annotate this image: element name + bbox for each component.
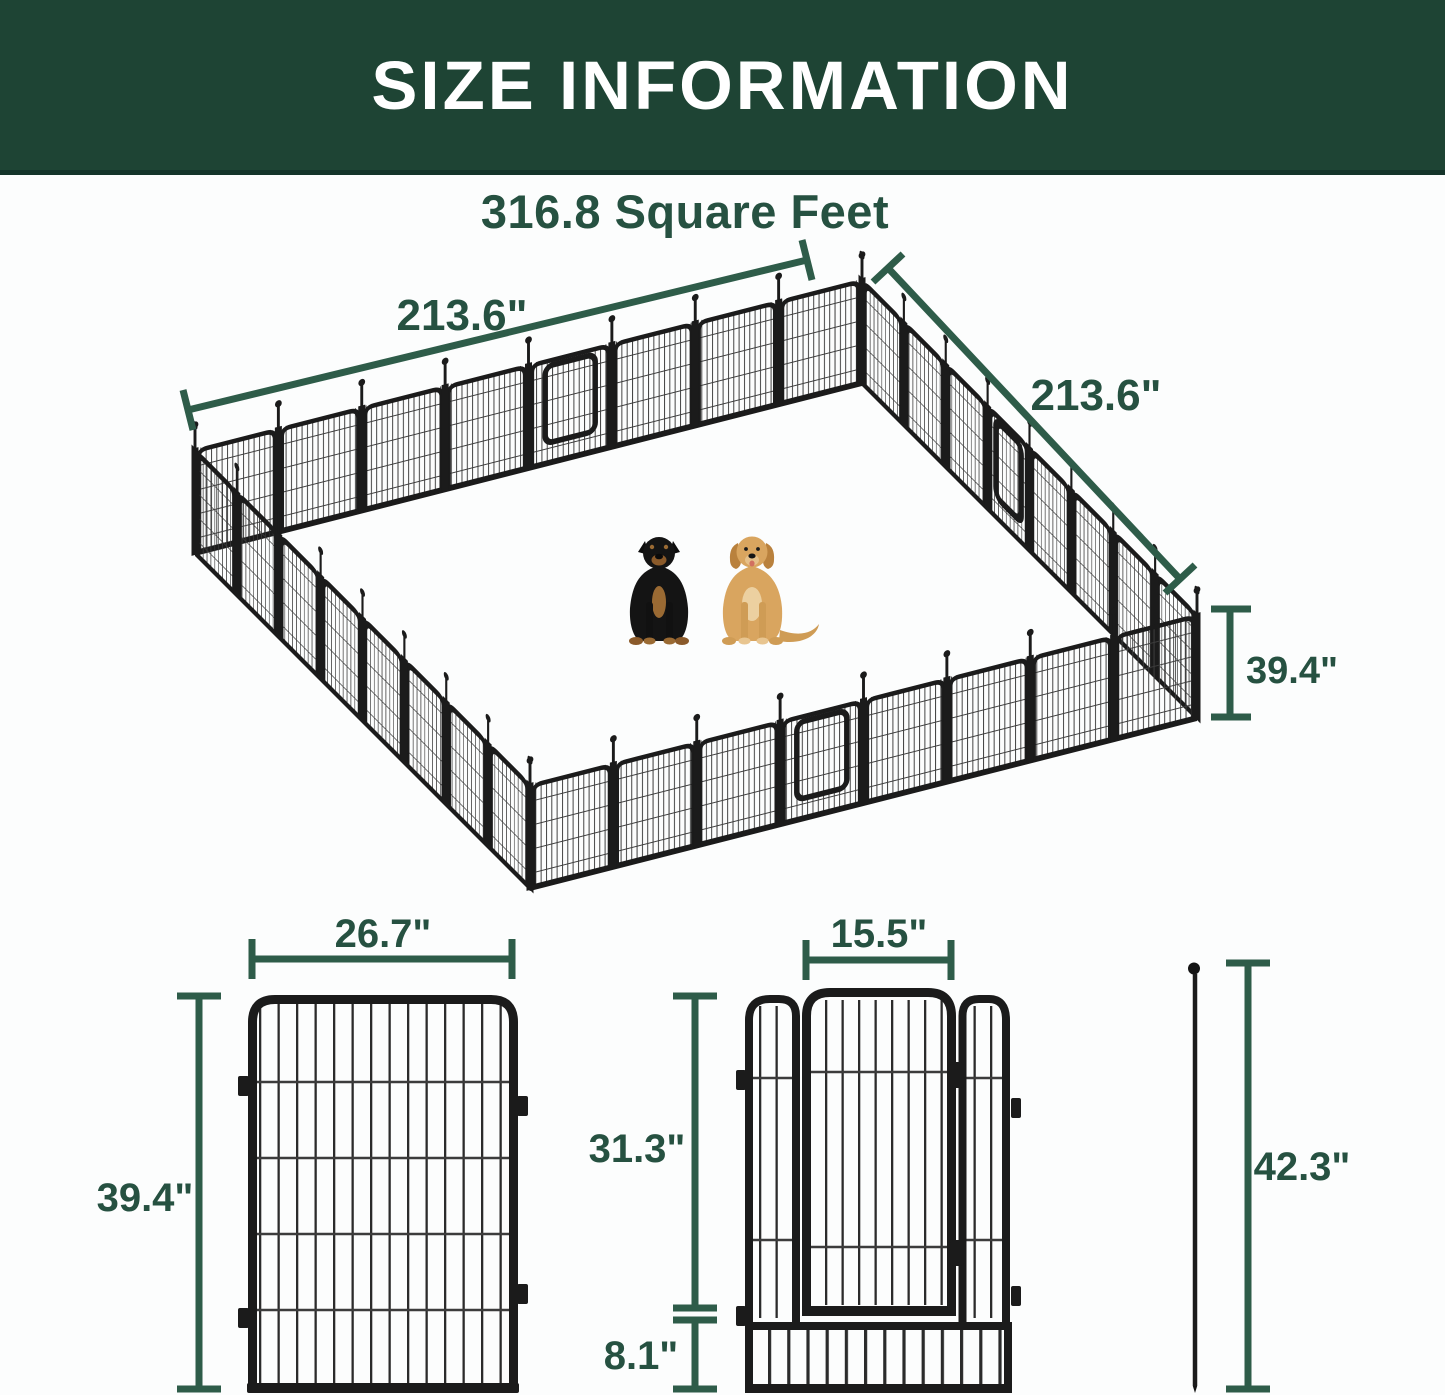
panel-connector-tab — [238, 1076, 249, 1096]
pen-isometric: 213.6" 213.6" 39.4" — [183, 240, 1338, 894]
pen-height-label: 39.4" — [1246, 650, 1338, 692]
rottweiler-image — [629, 537, 689, 645]
ground-stake-view: 42.3" — [1188, 963, 1350, 1394]
panel-connector-tab — [517, 1284, 528, 1304]
stake-height-label: 42.3" — [1254, 1145, 1351, 1189]
fence-wall — [527, 586, 1201, 891]
panel-connector-tab — [1011, 1098, 1021, 1118]
fence-walls — [192, 248, 1201, 894]
panel-connector-tab — [517, 1096, 528, 1116]
gate-door-width-label: 15.5" — [831, 912, 928, 956]
fence-wall — [192, 251, 866, 556]
panel-connector-tab — [238, 1308, 249, 1328]
pen-width-right-label: 213.6" — [1031, 371, 1162, 420]
gate-hinge — [950, 1062, 964, 1088]
golden-retriever-image — [722, 537, 819, 646]
panel-connector-tab — [736, 1306, 746, 1326]
panel-width-label: 26.7" — [335, 912, 432, 956]
panel-connector-tab — [736, 1070, 746, 1090]
panel-connector-tab — [1011, 1286, 1021, 1306]
gate-hinge — [950, 1240, 964, 1266]
panel-height-label: 39.4" — [97, 1176, 194, 1220]
panel-front-view: 26.7" 39.4" — [97, 912, 528, 1393]
pen-height-dimension — [1211, 609, 1251, 717]
gate-panel-front-view: 15.5" 31.3" 8.1" — [589, 912, 1021, 1393]
size-diagram: 213.6" 213.6" 39.4" 26.7" 39.4" — [0, 0, 1445, 1395]
pen-width-left-label: 213.6" — [397, 291, 528, 340]
gate-bottom-height-label: 8.1" — [604, 1334, 679, 1378]
stake-ball-top — [1188, 963, 1200, 975]
size-information-infographic: { "header": { "title": "SIZE INFORMATION… — [0, 0, 1445, 1395]
gate-bottom-height-dimension — [673, 1320, 717, 1389]
gate-door-height-label: 31.3" — [589, 1127, 686, 1171]
